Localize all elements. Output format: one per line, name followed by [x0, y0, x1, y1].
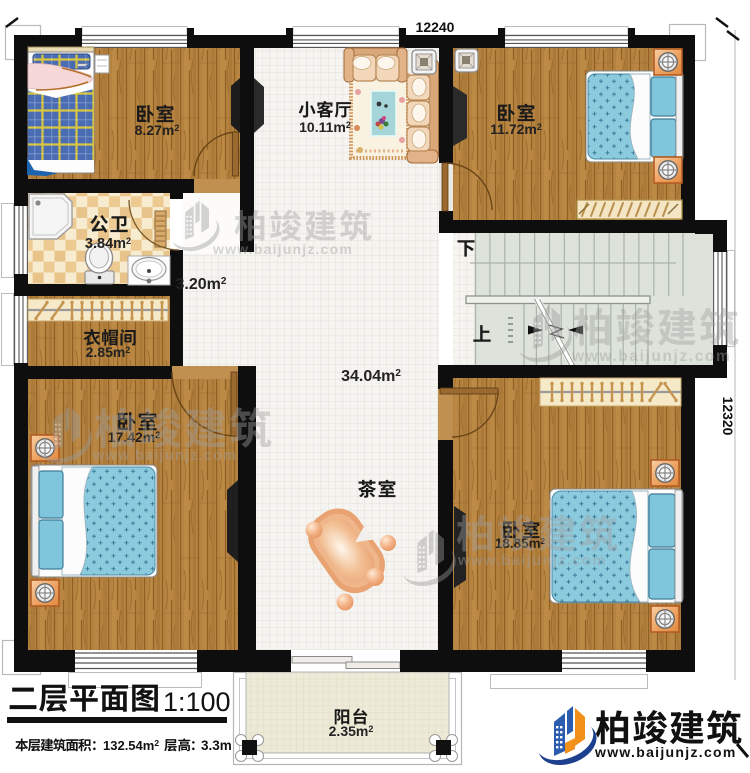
svg-text:10.11m2: 10.11m2 [299, 119, 351, 135]
svg-text:2.35m2: 2.35m2 [329, 723, 374, 739]
svg-text:www.baijunjz.com: www.baijunjz.com [571, 348, 731, 365]
svg-text:11.72m2: 11.72m2 [490, 121, 542, 137]
svg-text:12240: 12240 [416, 19, 455, 35]
svg-text:8.27m2: 8.27m2 [135, 122, 180, 138]
svg-text:2.85m2: 2.85m2 [86, 344, 131, 360]
svg-text:12320: 12320 [720, 397, 736, 436]
svg-text:132.54m2: 132.54m2 [103, 738, 159, 753]
svg-text:www.baijunjz.com: www.baijunjz.com [457, 552, 607, 569]
svg-text:www.baijunjz.com: www.baijunjz.com [212, 241, 353, 257]
svg-text:www.baijunjz.com: www.baijunjz.com [594, 744, 737, 760]
svg-text:www.baijunjz.com: www.baijunjz.com [92, 448, 237, 464]
svg-text:3.3m: 3.3m [201, 738, 232, 753]
svg-text:3.20m2: 3.20m2 [176, 276, 227, 293]
svg-text:3.84m2: 3.84m2 [85, 236, 131, 252]
svg-text:34.04m2: 34.04m2 [341, 368, 401, 385]
svg-text:1:100: 1:100 [163, 687, 231, 717]
